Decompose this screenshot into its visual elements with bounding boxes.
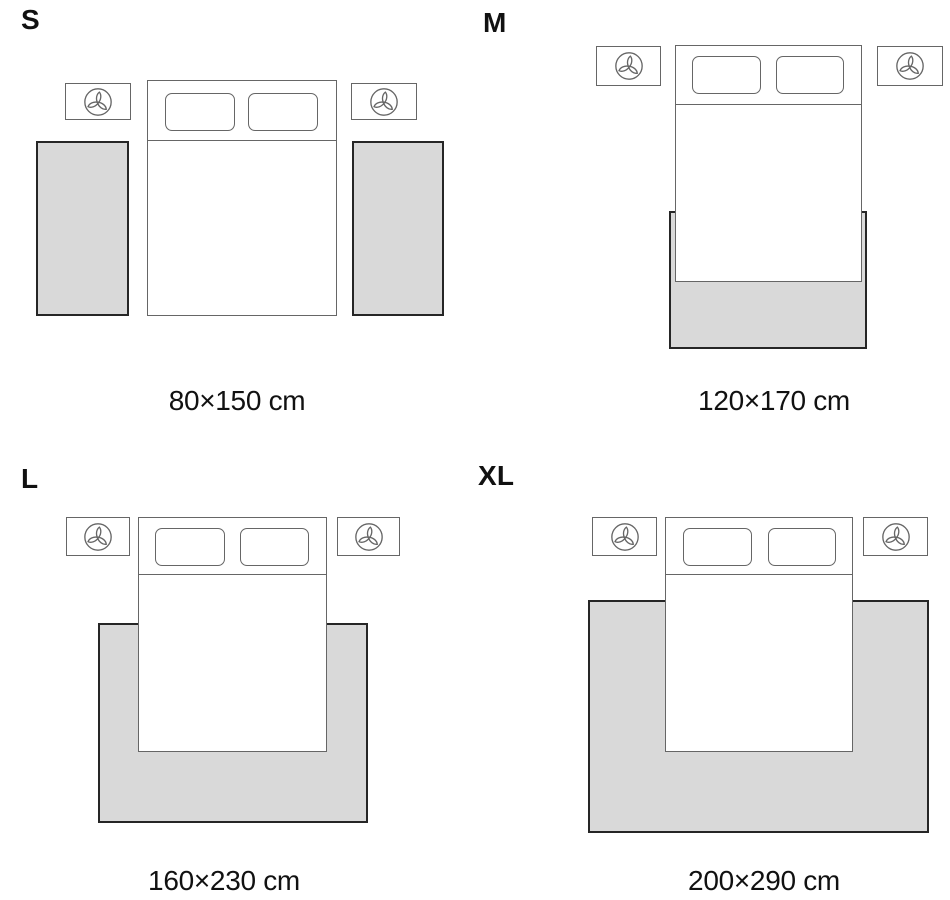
pillow-right <box>240 528 309 566</box>
pillow-right <box>248 93 318 131</box>
pillow-right <box>768 528 836 566</box>
pillow-left <box>165 93 235 131</box>
headboard-divider <box>139 574 326 575</box>
plant-icon <box>609 521 641 553</box>
bed <box>138 517 327 752</box>
plant-icon <box>613 50 645 82</box>
plant-icon <box>894 50 926 82</box>
nightstand-right <box>877 46 943 86</box>
rug-dimensions-xl: 200×290 cm <box>614 866 914 896</box>
pillow-right <box>776 56 844 94</box>
rug-size-guide: S <box>0 0 950 900</box>
headboard-divider <box>148 140 336 141</box>
bed <box>675 45 862 282</box>
size-label-l: L <box>21 464 38 494</box>
nightstand-right <box>337 517 400 556</box>
plant-icon <box>82 521 114 553</box>
pillow-left <box>683 528 752 566</box>
headboard-divider <box>676 104 861 105</box>
size-label-s: S <box>21 5 40 35</box>
rug-dimensions-s: 80×150 cm <box>87 386 387 416</box>
pillow-left <box>155 528 225 566</box>
rug-dimensions-l: 160×230 cm <box>74 866 374 896</box>
nightstand-left <box>596 46 661 86</box>
nightstand-left <box>592 517 657 556</box>
rug-dimensions-m: 120×170 cm <box>624 386 924 416</box>
size-label-m: M <box>483 8 507 38</box>
pillow-left <box>692 56 761 94</box>
bed <box>665 517 853 752</box>
size-label-xl: XL <box>478 461 514 491</box>
nightstand-right <box>351 83 417 120</box>
rug-runner-left <box>36 141 129 316</box>
plant-icon <box>82 86 114 118</box>
headboard-divider <box>666 574 852 575</box>
nightstand-left <box>65 83 131 120</box>
nightstand-right <box>863 517 928 556</box>
bed <box>147 80 337 316</box>
nightstand-left <box>66 517 130 556</box>
plant-icon <box>880 521 912 553</box>
plant-icon <box>368 86 400 118</box>
rug-runner-right <box>352 141 444 316</box>
plant-icon <box>353 521 385 553</box>
